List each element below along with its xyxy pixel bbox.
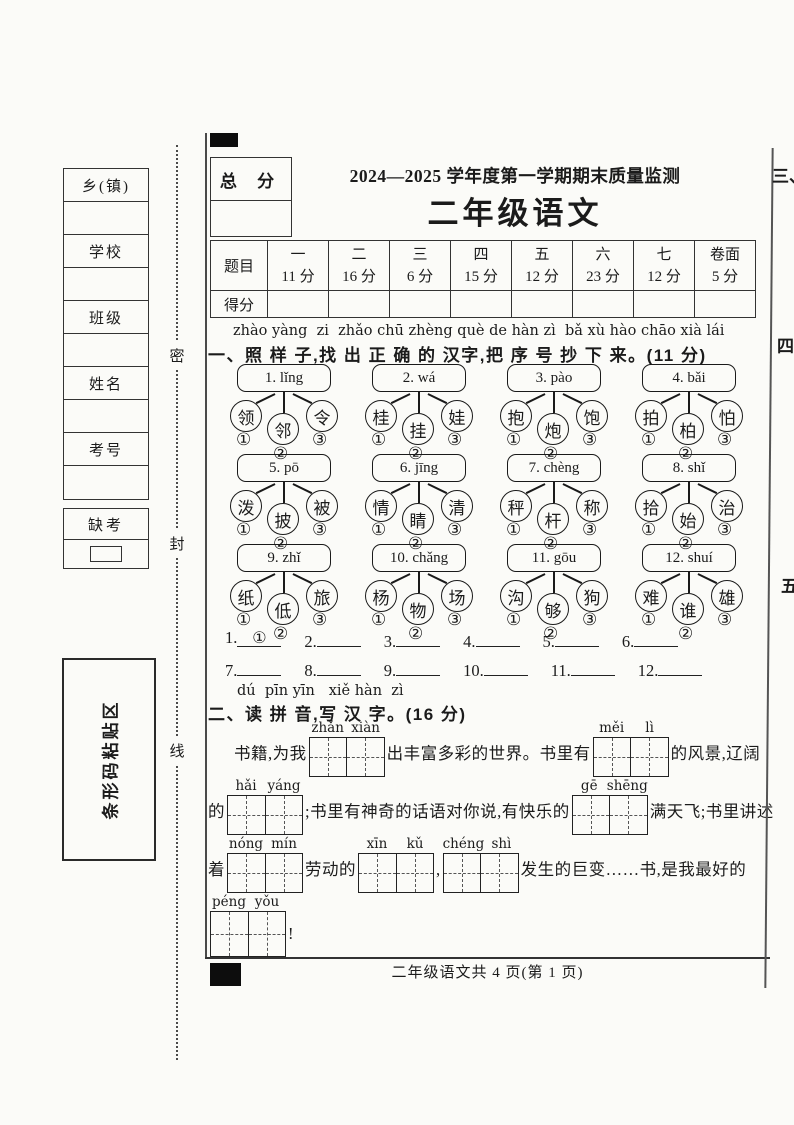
score-col-2: 二16 分 bbox=[329, 241, 390, 291]
connector-line bbox=[391, 483, 411, 494]
answer-blank[interactable] bbox=[658, 657, 702, 676]
page-footer: 二年级语文共 4 页(第 1 页) bbox=[205, 961, 770, 982]
choice-group-4[interactable]: 4. bǎi 拍 柏 怕 ① ② ③ bbox=[626, 364, 761, 454]
box-pinyin: péng bbox=[210, 894, 248, 911]
option-char: 桂 bbox=[365, 400, 397, 432]
choice-group-9[interactable]: 9. zhǐ 纸 低 旅 ① ② ③ bbox=[221, 544, 356, 634]
option-mark: ① bbox=[236, 520, 251, 540]
option-mark: ① bbox=[506, 610, 521, 630]
choice-group-row-3: 9. zhǐ 纸 低 旅 ① ② ③ 10. chǎng 杨 物 场 ① ② ③… bbox=[221, 544, 761, 634]
option-mark: ③ bbox=[717, 430, 732, 450]
answer-slot-6[interactable]: 6. bbox=[622, 628, 678, 652]
box-pinyin: yáng bbox=[265, 778, 303, 795]
score-cell-6[interactable] bbox=[573, 291, 634, 318]
writing-box[interactable]: hǎiyáng bbox=[227, 778, 303, 835]
field-label-school: 学校 bbox=[64, 235, 148, 268]
box-pinyin: yǒu bbox=[248, 894, 286, 911]
paragraph-text: 的风景,辽阔 bbox=[671, 740, 761, 777]
answer-no: 1. bbox=[225, 628, 237, 647]
choice-group-row-2: 5. pō 泼 披 被 ① ② ③ 6. jīng 情 睛 清 ① ② ③ 7.… bbox=[221, 454, 761, 544]
writing-cell[interactable] bbox=[346, 738, 384, 776]
connector-line bbox=[283, 482, 285, 503]
writing-cell[interactable] bbox=[211, 912, 248, 956]
group-pinyin-label: 11. gōu bbox=[507, 544, 601, 572]
option-char: 泼 bbox=[230, 490, 262, 522]
option-char: 沟 bbox=[500, 580, 532, 612]
seal-char-xian: 线 bbox=[168, 737, 186, 764]
option-char: 低 bbox=[267, 593, 299, 625]
connector-line bbox=[283, 392, 285, 413]
box-pinyin: lì bbox=[631, 720, 669, 737]
section1-title: 一、照 样 子,找 出 正 确 的 汉字,把 序 号 抄 下 来。(11 分) bbox=[208, 341, 707, 366]
box-pinyin: xīn bbox=[358, 836, 396, 853]
option-char: 物 bbox=[402, 593, 434, 625]
field-input-class[interactable] bbox=[64, 334, 148, 367]
group-pinyin-label: 4. bǎi bbox=[642, 364, 736, 392]
answer-blank[interactable] bbox=[476, 628, 520, 647]
connector-line bbox=[688, 482, 690, 503]
col-points: 23 分 bbox=[586, 269, 620, 285]
box-pinyin: chéng bbox=[443, 836, 485, 853]
writing-cell[interactable] bbox=[444, 854, 481, 892]
option-char: 雄 bbox=[711, 580, 743, 612]
connector-line bbox=[698, 483, 718, 494]
option-mark: ① bbox=[371, 430, 386, 450]
answer-no: 3. bbox=[384, 632, 396, 651]
answer-no: 10. bbox=[463, 661, 484, 680]
barcode-area-label: 条形码粘贴区 bbox=[97, 700, 122, 820]
option-char: 披 bbox=[267, 503, 299, 535]
answer-blank[interactable] bbox=[317, 657, 361, 676]
exam-paper-page: 乡(镇) 学校 班级 姓名 考号 缺考 条形码粘贴区 密 封 线 总 分 202… bbox=[0, 0, 794, 1125]
option-char: 睛 bbox=[402, 503, 434, 535]
answer-blank[interactable] bbox=[396, 628, 440, 647]
writing-box[interactable]: chéngshì bbox=[443, 836, 519, 893]
col-name: 七 bbox=[656, 247, 671, 263]
field-input-school[interactable] bbox=[64, 268, 148, 301]
option-char: 领 bbox=[230, 400, 262, 432]
writing-cell[interactable] bbox=[480, 854, 518, 892]
col-points: 12 分 bbox=[525, 269, 559, 285]
box-pinyin: zhǎn bbox=[309, 720, 347, 737]
answer-row-2: 7. 8. 9. 10. 11. 12. bbox=[225, 657, 725, 681]
answer-slot-11[interactable]: 11. bbox=[551, 657, 615, 681]
choice-group-2[interactable]: 2. wá 桂 挂 娃 ① ② ③ bbox=[356, 364, 491, 454]
connector-line bbox=[698, 573, 718, 584]
option-mark: ③ bbox=[447, 430, 462, 450]
option-mark: ③ bbox=[717, 520, 732, 540]
paragraph-text: 着 bbox=[208, 856, 225, 893]
connector-line bbox=[563, 573, 583, 584]
paragraph-text: 劳动的 bbox=[305, 856, 356, 893]
writing-box[interactable]: xīnkǔ bbox=[358, 836, 434, 893]
section2-pinyin: dú pīn yīn xiě hàn zì bbox=[237, 683, 404, 699]
option-mark: ③ bbox=[582, 520, 597, 540]
option-char: 挂 bbox=[402, 413, 434, 445]
connector-line bbox=[283, 572, 285, 593]
absent-box: 缺考 bbox=[63, 508, 149, 569]
writing-box[interactable]: nóngmín bbox=[227, 836, 303, 893]
option-mark: ③ bbox=[582, 430, 597, 450]
box-pinyin: shì bbox=[484, 836, 518, 853]
writing-cell[interactable] bbox=[265, 796, 303, 834]
option-mark: ① bbox=[641, 610, 656, 630]
paragraph-text: 的 bbox=[208, 798, 225, 835]
connector-line bbox=[293, 483, 313, 494]
writing-cell[interactable] bbox=[630, 738, 668, 776]
option-char: 旅 bbox=[306, 580, 338, 612]
absent-label: 缺考 bbox=[64, 509, 148, 540]
left-border-rule bbox=[205, 133, 207, 957]
option-char: 秤 bbox=[500, 490, 532, 522]
answer-no: 8. bbox=[304, 661, 316, 680]
option-char: 纸 bbox=[230, 580, 262, 612]
writing-cell[interactable] bbox=[310, 738, 347, 776]
field-label-town: 乡(镇) bbox=[64, 169, 148, 202]
paragraph-text: 发生的巨变……书,是我最好的 bbox=[521, 856, 747, 893]
score-col-8: 卷面5 分 bbox=[695, 241, 756, 291]
connector-line bbox=[418, 572, 420, 593]
col-points: 12 分 bbox=[647, 269, 681, 285]
connector-line bbox=[256, 483, 276, 494]
answer-blank[interactable] bbox=[571, 657, 615, 676]
answer-blank[interactable] bbox=[396, 657, 440, 676]
col-name: 卷面 bbox=[710, 247, 740, 263]
score-col-1: 一11 分 bbox=[268, 241, 329, 291]
connector-line bbox=[553, 572, 555, 593]
option-char: 清 bbox=[441, 490, 473, 522]
answer-no: 5. bbox=[543, 632, 555, 651]
score-table-corner: 题目 bbox=[211, 241, 268, 291]
next-page-section-3: 三、 bbox=[772, 162, 794, 187]
choice-group-3[interactable]: 3. pào 抱 炮 饱 ① ② ③ bbox=[491, 364, 626, 454]
group-pinyin-label: 5. pō bbox=[237, 454, 331, 482]
answer-slot-10[interactable]: 10. bbox=[463, 657, 528, 681]
choice-group-10[interactable]: 10. chǎng 杨 物 场 ① ② ③ bbox=[356, 544, 491, 634]
box-pinyin: mín bbox=[265, 836, 303, 853]
box-pinyin: měi bbox=[593, 720, 631, 737]
col-name: 一 bbox=[290, 247, 305, 263]
answer-slot-12[interactable]: 12. bbox=[638, 657, 703, 681]
answer-slot-7[interactable]: 7. bbox=[225, 657, 281, 681]
exam-title-line1: 2024—2025 学年度第一学期期末质量监测 bbox=[300, 163, 730, 188]
connector-line bbox=[688, 392, 690, 413]
absent-checkbox[interactable] bbox=[90, 546, 122, 562]
writing-cell[interactable] bbox=[265, 854, 303, 892]
exam-title-line2: 二年级语文 bbox=[300, 188, 730, 233]
connector-line bbox=[256, 573, 276, 584]
option-mark: ① bbox=[371, 520, 386, 540]
option-mark: ③ bbox=[582, 610, 597, 630]
option-char: 拍 bbox=[635, 400, 667, 432]
option-char: 令 bbox=[306, 400, 338, 432]
paragraph-line-3: 着 nóngmín 劳动的 xīnkǔ , chéngshì 发生的巨变……书,… bbox=[208, 836, 768, 893]
writing-box[interactable]: zhǎnxiàn bbox=[309, 720, 385, 777]
field-label-class: 班级 bbox=[64, 301, 148, 334]
option-mark: ① bbox=[371, 610, 386, 630]
answer-no: 7. bbox=[225, 661, 237, 680]
option-char: 狗 bbox=[576, 580, 608, 612]
box-pinyin: hǎi bbox=[227, 778, 265, 795]
connector-line bbox=[661, 573, 681, 584]
choice-group-6[interactable]: 6. jīng 情 睛 清 ① ② ③ bbox=[356, 454, 491, 544]
col-points: 5 分 bbox=[712, 269, 738, 285]
score-col-7: 七12 分 bbox=[634, 241, 695, 291]
col-points: 11 分 bbox=[281, 269, 314, 285]
next-page-section-5: 五 bbox=[781, 572, 794, 597]
total-score-label: 总 分 bbox=[211, 158, 291, 201]
choice-group-11[interactable]: 11. gōu 沟 够 狗 ① ② ③ bbox=[491, 544, 626, 634]
option-mark: ① bbox=[506, 520, 521, 540]
box-pinyin: kǔ bbox=[396, 836, 434, 853]
connector-line bbox=[661, 393, 681, 404]
answer-no: 11. bbox=[551, 661, 571, 680]
option-mark: ③ bbox=[717, 610, 732, 630]
score-col-3: 三6 分 bbox=[390, 241, 451, 291]
answer-blank[interactable] bbox=[634, 628, 678, 647]
answer-slot-2[interactable]: 2. bbox=[304, 628, 360, 652]
group-pinyin-label: 1. lǐng bbox=[237, 364, 331, 392]
connector-line bbox=[526, 393, 546, 404]
option-char: 称 bbox=[576, 490, 608, 522]
paragraph-line-4: péngyǒu ! bbox=[208, 894, 768, 957]
answer-row-1: 1.① 2. 3. 4. 5. 6. bbox=[225, 628, 701, 652]
section1-pinyin: zhào yàng zi zhǎo chū zhèng què de hàn z… bbox=[233, 323, 724, 339]
option-mark: ① bbox=[506, 430, 521, 450]
writing-box[interactable]: měilì bbox=[593, 720, 669, 777]
paragraph-text: 满天飞;书里讲述 bbox=[650, 798, 774, 835]
option-char: 杨 bbox=[365, 580, 397, 612]
connector-line bbox=[293, 393, 313, 404]
field-input-name[interactable] bbox=[64, 400, 148, 433]
col-name: 六 bbox=[595, 247, 610, 263]
paragraph-text: 书籍,为我 bbox=[234, 740, 307, 777]
choice-group-1[interactable]: 1. lǐng 领 邻 令 ① ② ③ bbox=[221, 364, 356, 454]
connector-line bbox=[698, 393, 718, 404]
connector-line bbox=[563, 393, 583, 404]
connector-line bbox=[428, 573, 448, 584]
answer-slot-8[interactable]: 8. bbox=[304, 657, 360, 681]
col-name: 五 bbox=[534, 247, 549, 263]
col-points: 6 分 bbox=[407, 269, 433, 285]
score-cell-1[interactable] bbox=[268, 291, 329, 318]
choice-group-row-1: 1. lǐng 领 邻 令 ① ② ③ 2. wá 桂 挂 娃 ① ② ③ 3.… bbox=[221, 364, 761, 454]
score-cell-5[interactable] bbox=[512, 291, 573, 318]
field-label-examno: 考号 bbox=[64, 433, 148, 466]
connector-line bbox=[563, 483, 583, 494]
answer-slot-9[interactable]: 9. bbox=[384, 657, 440, 681]
score-cell-8[interactable] bbox=[695, 291, 756, 318]
option-mark: ③ bbox=[447, 520, 462, 540]
connector-line bbox=[391, 573, 411, 584]
answer-slot-5[interactable]: 5. bbox=[543, 628, 599, 652]
choice-group-5[interactable]: 5. pō 泼 披 被 ① ② ③ bbox=[221, 454, 356, 544]
choice-group-7[interactable]: 7. chèng 秤 杆 称 ① ② ③ bbox=[491, 454, 626, 544]
barcode-paste-area: 条形码粘贴区 bbox=[62, 658, 156, 861]
answer-blank[interactable] bbox=[237, 657, 281, 676]
connector-line bbox=[688, 572, 690, 593]
connector-line bbox=[391, 393, 411, 404]
box-pinyin: gē bbox=[572, 778, 607, 795]
paragraph-text: , bbox=[436, 860, 441, 893]
answer-no: 2. bbox=[304, 632, 316, 651]
option-mark: ① bbox=[236, 430, 251, 450]
answer-slot-1[interactable]: 1.① bbox=[225, 628, 281, 652]
field-input-examno[interactable] bbox=[64, 466, 148, 499]
option-char: 被 bbox=[306, 490, 338, 522]
box-pinyin: shēng bbox=[607, 778, 648, 795]
paragraph-text: 出丰富多彩的世界。书里有 bbox=[387, 740, 591, 777]
writing-cell[interactable] bbox=[573, 796, 610, 834]
section2-paragraph: 书籍,为我 zhǎnxiàn 出丰富多彩的世界。书里有 měilì 的风景,辽阔… bbox=[208, 720, 768, 958]
answer-blank[interactable]: ① bbox=[237, 628, 281, 647]
writing-cell[interactable] bbox=[609, 796, 647, 834]
score-cell-4[interactable] bbox=[451, 291, 512, 318]
group-pinyin-label: 8. shǐ bbox=[642, 454, 736, 482]
writing-cell[interactable] bbox=[396, 854, 434, 892]
answer-slot-4[interactable]: 4. bbox=[463, 628, 519, 652]
seal-char-mi: 密 bbox=[168, 342, 186, 369]
connector-line bbox=[418, 392, 420, 413]
paragraph-text: ;书里有神奇的话语对你说,有快乐的 bbox=[305, 798, 570, 835]
option-char: 杆 bbox=[537, 503, 569, 535]
answer-no: 9. bbox=[384, 661, 396, 680]
option-mark: ③ bbox=[312, 430, 327, 450]
student-info-table: 乡(镇) 学校 班级 姓名 考号 bbox=[63, 168, 149, 500]
connector-line bbox=[553, 392, 555, 413]
option-char: 谁 bbox=[672, 593, 704, 625]
box-pinyin: nóng bbox=[227, 836, 265, 853]
option-char: 够 bbox=[537, 593, 569, 625]
col-name: 二 bbox=[351, 247, 366, 263]
option-char: 炮 bbox=[537, 413, 569, 445]
choice-group-12[interactable]: 12. shuí 难 谁 雄 ① ② ③ bbox=[626, 544, 761, 634]
group-pinyin-label: 6. jīng bbox=[372, 454, 466, 482]
option-mark: ① bbox=[641, 520, 656, 540]
col-name: 三 bbox=[412, 247, 427, 263]
seal-dotted-line bbox=[176, 145, 178, 1060]
connector-line bbox=[661, 483, 681, 494]
connector-line bbox=[293, 573, 313, 584]
writing-cell[interactable] bbox=[228, 854, 265, 892]
answer-no: 12. bbox=[638, 661, 659, 680]
writing-cell[interactable] bbox=[594, 738, 631, 776]
connector-line bbox=[256, 393, 276, 404]
col-points: 15 分 bbox=[464, 269, 498, 285]
connector-line bbox=[526, 573, 546, 584]
box-pinyin: xiàn bbox=[347, 720, 385, 737]
group-pinyin-label: 10. chǎng bbox=[372, 544, 466, 572]
score-col-4: 四15 分 bbox=[451, 241, 512, 291]
option-char: 怕 bbox=[711, 400, 743, 432]
option-char: 娃 bbox=[441, 400, 473, 432]
field-label-name: 姓名 bbox=[64, 367, 148, 400]
answer-blank[interactable] bbox=[555, 628, 599, 647]
connector-line bbox=[526, 483, 546, 494]
option-char: 场 bbox=[441, 580, 473, 612]
option-char: 治 bbox=[711, 490, 743, 522]
score-table: 题目 一11 分 二16 分 三6 分 四15 分 五12 分 六23 分 七1… bbox=[210, 240, 756, 318]
col-points: 16 分 bbox=[342, 269, 376, 285]
option-mark: ③ bbox=[312, 520, 327, 540]
answer-slot-3[interactable]: 3. bbox=[384, 628, 440, 652]
answer-blank[interactable] bbox=[317, 628, 361, 647]
answer-no: 4. bbox=[463, 632, 475, 651]
score-row-label: 得分 bbox=[211, 291, 268, 318]
footer-rule bbox=[205, 957, 770, 959]
answer-no: 6. bbox=[622, 632, 634, 651]
connector-line bbox=[428, 393, 448, 404]
group-pinyin-label: 12. shuí bbox=[642, 544, 736, 572]
option-char: 拾 bbox=[635, 490, 667, 522]
option-char: 始 bbox=[672, 503, 704, 535]
option-char: 邻 bbox=[267, 413, 299, 445]
option-char: 情 bbox=[365, 490, 397, 522]
next-page-section-4: 四 bbox=[777, 332, 794, 357]
writing-box[interactable]: gēshēng bbox=[572, 778, 648, 835]
group-pinyin-label: 2. wá bbox=[372, 364, 466, 392]
col-name: 四 bbox=[473, 247, 488, 263]
paragraph-text: ! bbox=[288, 924, 294, 957]
score-cell-3[interactable] bbox=[390, 291, 451, 318]
score-cell-7[interactable] bbox=[634, 291, 695, 318]
field-input-town[interactable] bbox=[64, 202, 148, 235]
registration-mark-top bbox=[210, 133, 238, 147]
score-col-6: 六23 分 bbox=[573, 241, 634, 291]
option-mark: ③ bbox=[447, 610, 462, 630]
option-char: 饱 bbox=[576, 400, 608, 432]
score-col-5: 五12 分 bbox=[512, 241, 573, 291]
option-mark: ① bbox=[236, 610, 251, 630]
writing-cell[interactable] bbox=[359, 854, 396, 892]
paragraph-line-2: 的 hǎiyáng ;书里有神奇的话语对你说,有快乐的 gēshēng 满天飞;… bbox=[208, 778, 768, 835]
connector-line bbox=[553, 482, 555, 503]
writing-cell[interactable] bbox=[228, 796, 265, 834]
option-char: 柏 bbox=[672, 413, 704, 445]
option-char: 抱 bbox=[500, 400, 532, 432]
writing-box[interactable]: péngyǒu bbox=[210, 894, 286, 957]
paragraph-line-1: 书籍,为我 zhǎnxiàn 出丰富多彩的世界。书里有 měilì 的风景,辽阔 bbox=[208, 720, 768, 777]
group-pinyin-label: 3. pào bbox=[507, 364, 601, 392]
group-pinyin-label: 9. zhǐ bbox=[237, 544, 331, 572]
writing-cell[interactable] bbox=[248, 912, 286, 956]
connector-line bbox=[418, 482, 420, 503]
choice-group-8[interactable]: 8. shǐ 拾 始 治 ① ② ③ bbox=[626, 454, 761, 544]
seal-char-feng: 封 bbox=[168, 530, 186, 557]
connector-line bbox=[428, 483, 448, 494]
answer-blank[interactable] bbox=[484, 657, 528, 676]
main-content: 总 分 2024—2025 学年度第一学期期末质量监测 二年级语文 题目 一11… bbox=[205, 0, 770, 1125]
option-char: 难 bbox=[635, 580, 667, 612]
option-mark: ① bbox=[641, 430, 656, 450]
group-pinyin-label: 7. chèng bbox=[507, 454, 601, 482]
total-score-box: 总 分 bbox=[210, 157, 292, 237]
option-mark: ③ bbox=[312, 610, 327, 630]
score-cell-2[interactable] bbox=[329, 291, 390, 318]
